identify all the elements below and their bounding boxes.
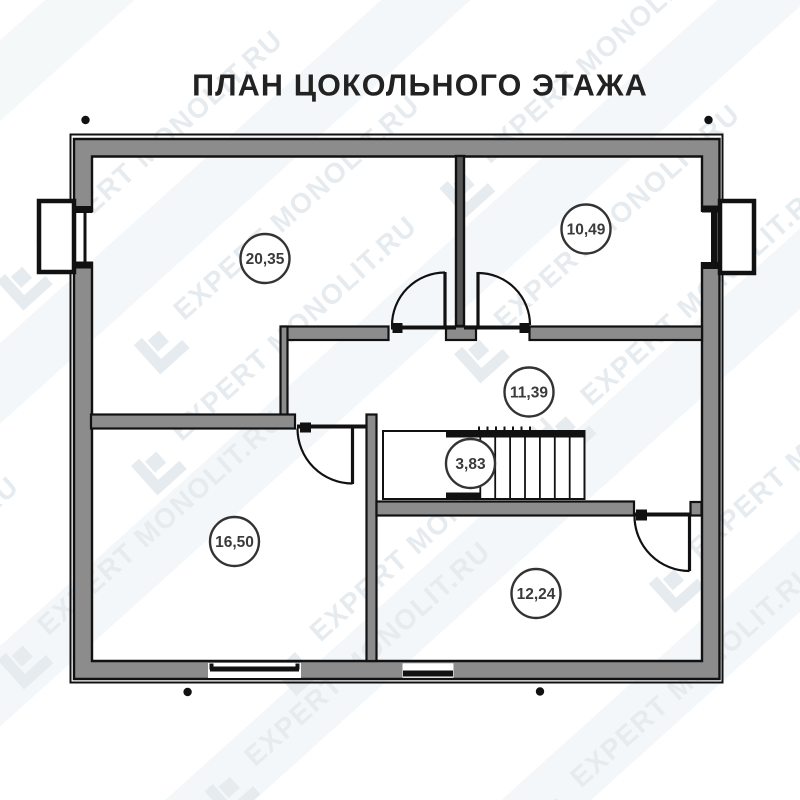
svg-text:12,24: 12,24 [517,586,556,603]
svg-text:10,49: 10,49 [567,222,606,239]
svg-text:11,39: 11,39 [510,385,548,402]
svg-text:3,83: 3,83 [455,456,486,473]
svg-text:16,50: 16,50 [215,534,254,551]
svg-text:ПЛАН ЦОКОЛЬНОГО ЭТАЖА: ПЛАН ЦОКОЛЬНОГО ЭТАЖА [192,69,648,103]
svg-text:20,35: 20,35 [246,251,285,268]
